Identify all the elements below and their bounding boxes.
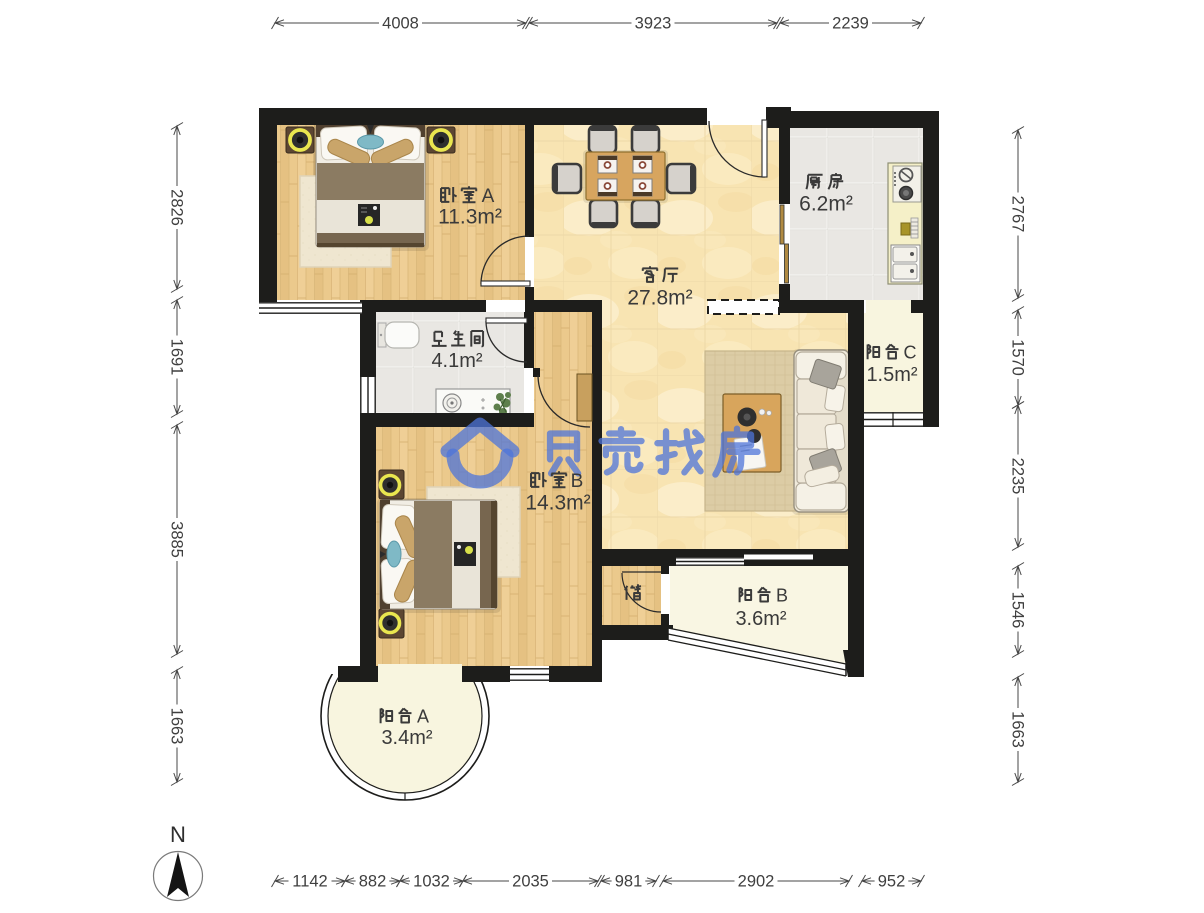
svg-text:4008: 4008 <box>382 15 419 33</box>
svg-text:1663: 1663 <box>1008 711 1026 748</box>
svg-text:1570: 1570 <box>1008 339 1026 376</box>
svg-text:2035: 2035 <box>512 873 549 891</box>
svg-text:1.5m²: 1.5m² <box>866 364 917 386</box>
svg-text:2239: 2239 <box>832 15 869 33</box>
svg-text:1142: 1142 <box>292 873 327 891</box>
svg-text:2826: 2826 <box>167 189 185 226</box>
svg-text:3885: 3885 <box>167 521 185 558</box>
svg-text:A: A <box>417 707 429 727</box>
svg-text:981: 981 <box>615 873 643 891</box>
svg-text:2902: 2902 <box>738 873 775 891</box>
svg-text:B: B <box>776 586 788 606</box>
svg-text:3923: 3923 <box>635 15 672 33</box>
svg-text:B: B <box>571 471 584 492</box>
svg-text:1691: 1691 <box>167 339 185 376</box>
svg-text:2767: 2767 <box>1008 196 1026 233</box>
svg-text:N: N <box>170 822 186 847</box>
svg-text:11.3m²: 11.3m² <box>438 206 502 229</box>
svg-text:1032: 1032 <box>413 873 450 891</box>
svg-text:A: A <box>482 186 495 207</box>
svg-text:1546: 1546 <box>1008 592 1026 629</box>
svg-text:6.2m²: 6.2m² <box>799 193 853 216</box>
svg-text:1663: 1663 <box>167 708 185 745</box>
svg-text:4.1m²: 4.1m² <box>431 350 482 372</box>
svg-text:3.4m²: 3.4m² <box>381 727 432 749</box>
svg-text:14.3m²: 14.3m² <box>525 492 590 515</box>
svg-text:952: 952 <box>878 873 906 891</box>
svg-text:27.8m²: 27.8m² <box>627 287 692 310</box>
svg-text:2235: 2235 <box>1008 458 1026 495</box>
svg-text:3.6m²: 3.6m² <box>735 608 786 630</box>
svg-text:882: 882 <box>359 873 387 891</box>
svg-text:C: C <box>904 343 917 363</box>
